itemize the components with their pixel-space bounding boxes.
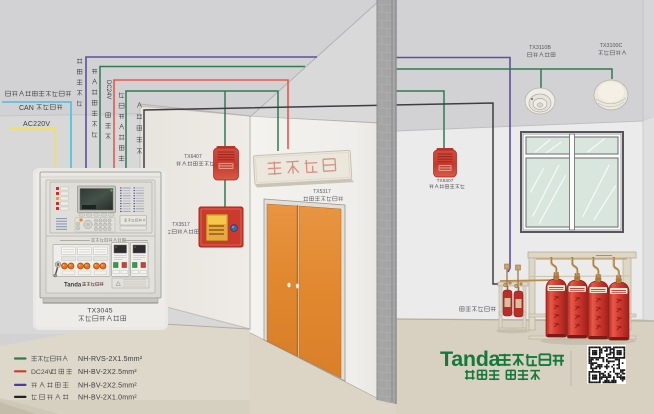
svg-text:TX6407: TX6407 <box>184 154 202 160</box>
svg-text:AC220V: AC220V <box>23 121 50 128</box>
svg-text:TX5317: TX5317 <box>313 189 331 195</box>
svg-text:DC24V: DC24V <box>31 369 53 376</box>
svg-text:TX3517: TX3517 <box>172 222 190 228</box>
svg-text:NH-BV-2X2.5mm²: NH-BV-2X2.5mm² <box>78 383 137 390</box>
svg-text:NH-BV-2X2.5mm²: NH-BV-2X2.5mm² <box>78 369 137 376</box>
svg-text:NH-BV-2X1.0mm²: NH-BV-2X1.0mm² <box>78 395 137 402</box>
svg-text:TX6307: TX6307 <box>437 178 454 184</box>
svg-text:Tanda: Tanda <box>440 347 502 371</box>
svg-text:TX3100C: TX3100C <box>600 43 623 49</box>
svg-text:TX3110B: TX3110B <box>529 45 551 51</box>
svg-text:NH-RVS-2X1.5mm²: NH-RVS-2X1.5mm² <box>78 356 143 363</box>
svg-text:Tanda: Tanda <box>64 283 82 289</box>
svg-text:DC24V: DC24V <box>105 80 111 99</box>
svg-text:CAN: CAN <box>19 105 34 112</box>
svg-text:TX3045: TX3045 <box>87 308 113 315</box>
